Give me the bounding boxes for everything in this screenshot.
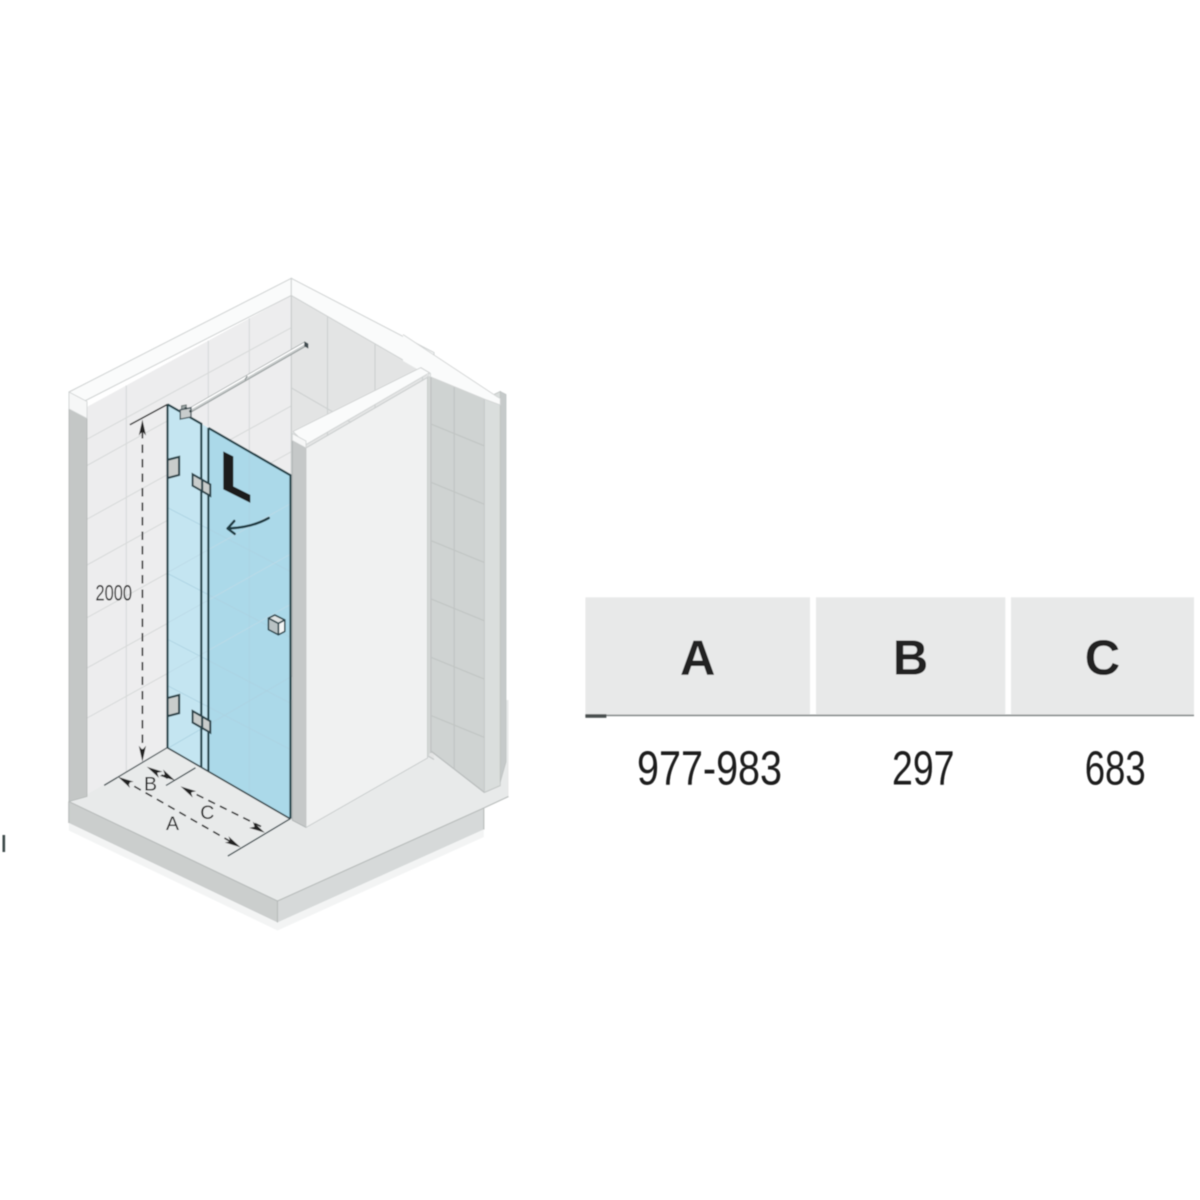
svg-text:A: A bbox=[166, 813, 179, 835]
svg-text:683: 683 bbox=[1085, 743, 1146, 796]
svg-text:B: B bbox=[893, 632, 928, 686]
svg-text:C: C bbox=[200, 802, 214, 824]
svg-text:C: C bbox=[1085, 632, 1120, 686]
svg-text:297: 297 bbox=[892, 743, 955, 796]
svg-text:2000: 2000 bbox=[96, 581, 133, 606]
svg-text:A: A bbox=[680, 632, 715, 686]
svg-text:977-983: 977-983 bbox=[637, 743, 782, 796]
